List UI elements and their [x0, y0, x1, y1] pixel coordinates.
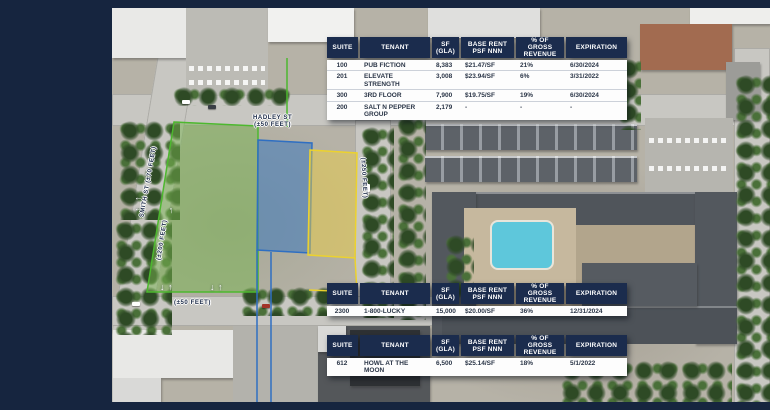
- col-header-gross-revenue: % OF GROSS REVENUE: [516, 37, 564, 58]
- table-body: 100 PUB FICTION 8,383 $21.47/SF 21% 6/30…: [327, 60, 627, 120]
- cell-rent: $21.47/SF: [461, 60, 514, 71]
- cell-rent: $20.00/SF: [461, 306, 514, 317]
- cell-gross: 21%: [516, 60, 564, 71]
- parcel-highlight-blue: [257, 140, 312, 253]
- col-header-expiration: EXPIRATION: [566, 283, 627, 304]
- cell-expiration: 6/30/2024: [566, 90, 627, 101]
- cell-expiration: 5/1/2022: [566, 358, 627, 376]
- col-header-tenant: TENANT: [360, 335, 430, 356]
- cell-suite: 100: [327, 60, 358, 71]
- table-row: 2300 1-800-LUCKY 15,000 $20.00/SF 36% 12…: [327, 306, 627, 317]
- cell-gross: 18%: [516, 358, 564, 376]
- dimension-arrow-down-icon: ↓: [210, 283, 215, 292]
- table-body: 2300 1-800-LUCKY 15,000 $20.00/SF 36% 12…: [327, 306, 627, 317]
- dimension-arrow-up-icon: ↑: [168, 283, 173, 292]
- street-label-line1: HADLEY ST: [253, 115, 292, 122]
- cell-expiration: -: [566, 102, 627, 120]
- col-header-gross-revenue: % OF GROSS REVENUE: [516, 335, 564, 356]
- col-header-sf-gla: SF (GLA): [432, 335, 459, 356]
- cell-gross: 19%: [516, 90, 564, 101]
- cell-tenant: ELEVATE STRENGTH: [360, 71, 430, 89]
- cell-expiration: 6/30/2024: [566, 60, 627, 71]
- street-label-line2: (±50 FEET): [253, 122, 292, 129]
- street-label-hadley: HADLEY ST (±50 FEET): [253, 115, 292, 129]
- table-row: 612 HOWL AT THE MOON 6,500 $25.14/SF 18%…: [327, 358, 627, 376]
- table-row: 100 PUB FICTION 8,383 $21.47/SF 21% 6/30…: [327, 60, 627, 71]
- rent-table-building-3: SUITE TENANT SF (GLA) BASE RENT PSF NNN …: [327, 335, 627, 376]
- cell-gross: 6%: [516, 71, 564, 89]
- dimension-arrow-down-icon: ↓: [160, 283, 165, 292]
- cell-gross: -: [516, 102, 564, 120]
- dimension-label-south: (±50 FEET): [174, 300, 211, 307]
- table-header-row: SUITE TENANT SF (GLA) BASE RENT PSF NNN …: [327, 283, 627, 304]
- table-row: 201 ELEVATE STRENGTH 3,008 $23.94/SF 6% …: [327, 70, 627, 89]
- cell-suite: 200: [327, 102, 358, 120]
- col-header-sf-gla: SF (GLA): [432, 37, 459, 58]
- table-row: 200 SALT N PEPPER GROUP 2,179 - - -: [327, 101, 627, 120]
- col-header-suite: SUITE: [327, 335, 358, 356]
- cell-suite: 612: [327, 358, 358, 376]
- cell-rent: $19.75/SF: [461, 90, 514, 101]
- rent-table-building-2: SUITE TENANT SF (GLA) BASE RENT PSF NNN …: [327, 283, 627, 316]
- col-header-tenant: TENANT: [360, 37, 430, 58]
- col-header-base-rent: BASE RENT PSF NNN: [461, 283, 514, 304]
- col-header-suite: SUITE: [327, 283, 358, 304]
- col-header-base-rent: BASE RENT PSF NNN: [461, 335, 514, 356]
- col-header-base-rent: BASE RENT PSF NNN: [461, 37, 514, 58]
- cell-sf: 7,900: [432, 90, 459, 101]
- cell-sf: 3,008: [432, 71, 459, 89]
- table-header-row: SUITE TENANT SF (GLA) BASE RENT PSF NNN …: [327, 335, 627, 356]
- cell-expiration: 12/31/2024: [566, 306, 627, 317]
- col-header-expiration: EXPIRATION: [566, 37, 627, 58]
- cell-tenant: 1-800-LUCKY: [360, 306, 430, 317]
- cell-tenant: SALT N PEPPER GROUP: [360, 102, 430, 120]
- cell-sf: 15,000: [432, 306, 459, 317]
- cell-suite: 300: [327, 90, 358, 101]
- dimension-arrow-up-icon: ↑: [168, 206, 174, 216]
- table-body: 612 HOWL AT THE MOON 6,500 $25.14/SF 18%…: [327, 358, 627, 376]
- cell-tenant: HOWL AT THE MOON: [360, 358, 430, 376]
- col-header-sf-gla: SF (GLA): [432, 283, 459, 304]
- table-row: 300 3RD FLOOR 7,900 $19.75/SF 19% 6/30/2…: [327, 89, 627, 101]
- marketing-aerial-page: HADLEY ST (±50 FEET) SMITH ST (±70 FEET)…: [0, 0, 770, 410]
- parcel-highlight-yellow: [308, 150, 357, 258]
- cell-tenant: 3RD FLOOR: [360, 90, 430, 101]
- dimension-arrow-left-icon: ←: [134, 193, 143, 202]
- col-header-tenant: TENANT: [360, 283, 430, 304]
- cell-rent: $23.94/SF: [461, 71, 514, 89]
- cell-suite: 2300: [327, 306, 358, 317]
- col-header-suite: SUITE: [327, 37, 358, 58]
- dimension-arrow-left-icon: ←: [134, 204, 143, 213]
- col-header-gross-revenue: % OF GROSS REVENUE: [516, 283, 564, 304]
- cell-expiration: 3/31/2022: [566, 71, 627, 89]
- cell-gross: 36%: [516, 306, 564, 317]
- table-header-row: SUITE TENANT SF (GLA) BASE RENT PSF NNN …: [327, 37, 627, 58]
- cell-sf: 2,179: [432, 102, 459, 120]
- col-header-expiration: EXPIRATION: [566, 335, 627, 356]
- cell-tenant: PUB FICTION: [360, 60, 430, 71]
- cell-sf: 8,383: [432, 60, 459, 71]
- dimension-arrow-up-icon: ↑: [218, 283, 223, 292]
- cell-sf: 6,500: [432, 358, 459, 376]
- parcel-highlight-green: [147, 122, 258, 292]
- cell-rent: -: [461, 102, 514, 120]
- cell-suite: 201: [327, 71, 358, 89]
- cell-rent: $25.14/SF: [461, 358, 514, 376]
- rent-table-building-1: SUITE TENANT SF (GLA) BASE RENT PSF NNN …: [327, 37, 627, 120]
